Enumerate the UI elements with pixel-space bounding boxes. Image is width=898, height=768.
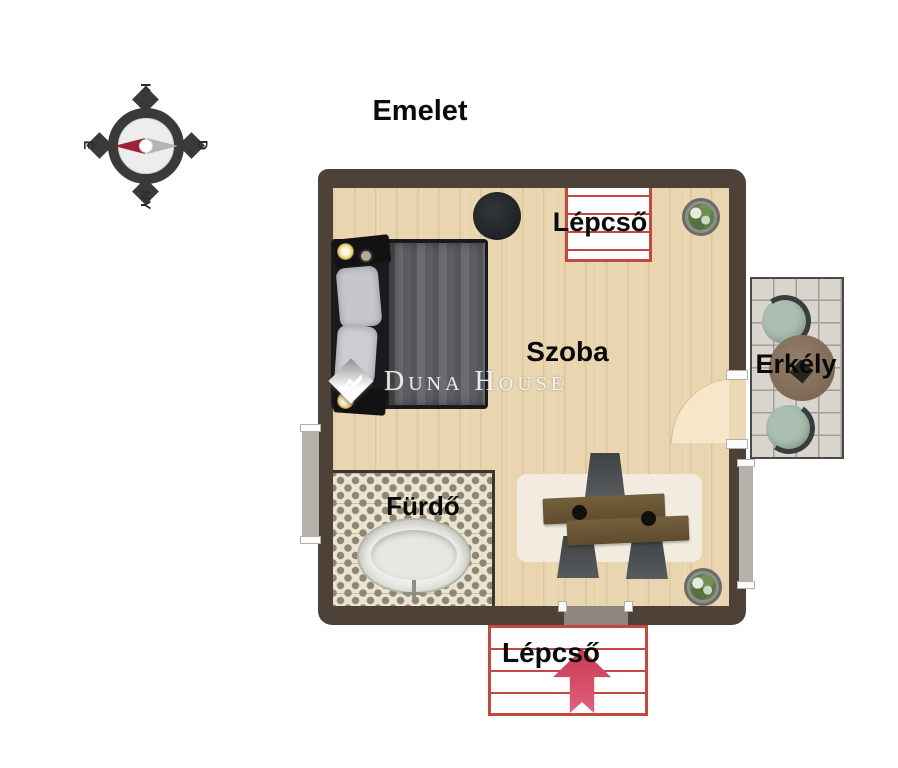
window-left-cap (300, 536, 321, 544)
page-title: Emelet (340, 96, 500, 128)
desk-lamp-icon (641, 511, 656, 526)
label-stairs-upper: Lépcső (540, 208, 660, 238)
compass-rose-icon: K D NY É (80, 80, 212, 212)
door-jamb (726, 370, 748, 380)
pouf (473, 192, 521, 240)
floorplan-page: { "title": "Emelet", "compass": { "top":… (0, 0, 898, 768)
bathtub-basin (371, 530, 457, 580)
duna-house-logo-icon (330, 360, 374, 404)
door-jamb (726, 439, 748, 449)
office-chair (585, 453, 625, 497)
compass-label-top: K (138, 78, 154, 98)
window-right-cap (737, 459, 755, 467)
watermark: Duna House (330, 360, 567, 404)
label-balcony: Erkély (748, 350, 844, 380)
door-jamb (624, 601, 633, 612)
label-stairs-lower: Lépcső (486, 638, 616, 669)
window-right (739, 463, 753, 585)
stairs-door-opening (564, 606, 628, 625)
balcony-chair-back (759, 398, 819, 458)
bathtub-faucet-icon (403, 592, 425, 595)
compass-label-bottom: NY (138, 186, 154, 214)
potted-plant-icon (682, 198, 720, 236)
desk-lamp-icon (572, 505, 587, 520)
balcony-door-opening (729, 379, 746, 440)
compass-label-right: D (195, 136, 211, 154)
label-bathroom: Fürdő (368, 492, 478, 521)
window-left (302, 428, 319, 540)
pillow (335, 265, 382, 328)
plant-leaves (688, 204, 714, 230)
bedside-lamp-icon (337, 243, 354, 260)
bathtub-faucet-icon (412, 580, 416, 598)
window-left-cap (300, 424, 321, 432)
desk-area (517, 450, 709, 580)
bedside-clock-icon (359, 249, 373, 263)
watermark-text: Duna House (384, 366, 567, 398)
door-jamb (558, 601, 567, 612)
compass-hub (139, 139, 153, 153)
office-chair (626, 537, 668, 579)
desk (567, 515, 690, 545)
compass-label-left: É (81, 136, 97, 154)
window-right-cap (737, 581, 755, 589)
